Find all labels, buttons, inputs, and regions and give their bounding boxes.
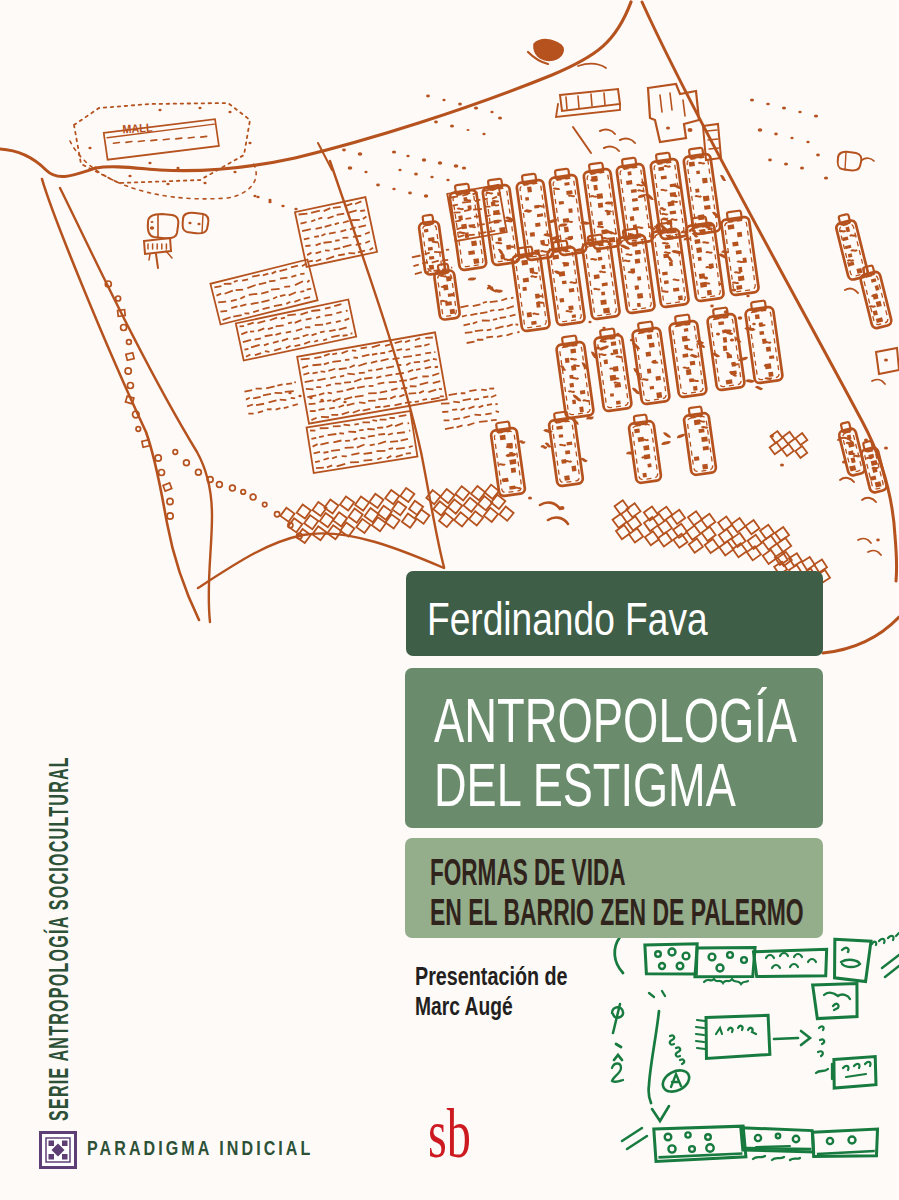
svg-text:Ferdinando Fava: Ferdinando Fava xyxy=(427,593,708,645)
svg-text:MALL: MALL xyxy=(122,121,153,136)
svg-text:PARADIGMA INDICIAL: PARADIGMA INDICIAL xyxy=(87,1136,313,1160)
svg-text:DEL ESTIGMA: DEL ESTIGMA xyxy=(434,750,736,819)
svg-text:sb: sb xyxy=(428,1096,471,1172)
svg-text:Presentación de: Presentación de xyxy=(415,961,568,990)
svg-text:Marc Augé: Marc Augé xyxy=(415,991,513,1021)
svg-text:EN EL BARRIO ZEN DE PALERMO: EN EL BARRIO ZEN DE PALERMO xyxy=(430,891,804,933)
svg-text:ANTROPOLOGÍA: ANTROPOLOGÍA xyxy=(434,686,798,756)
svg-text:SERIE ANTROPOLOGÍA SOCIOCULTUR: SERIE ANTROPOLOGÍA SOCIOCULTURAL xyxy=(44,756,74,1121)
svg-text:FORMAS DE VIDA: FORMAS DE VIDA xyxy=(430,851,625,892)
